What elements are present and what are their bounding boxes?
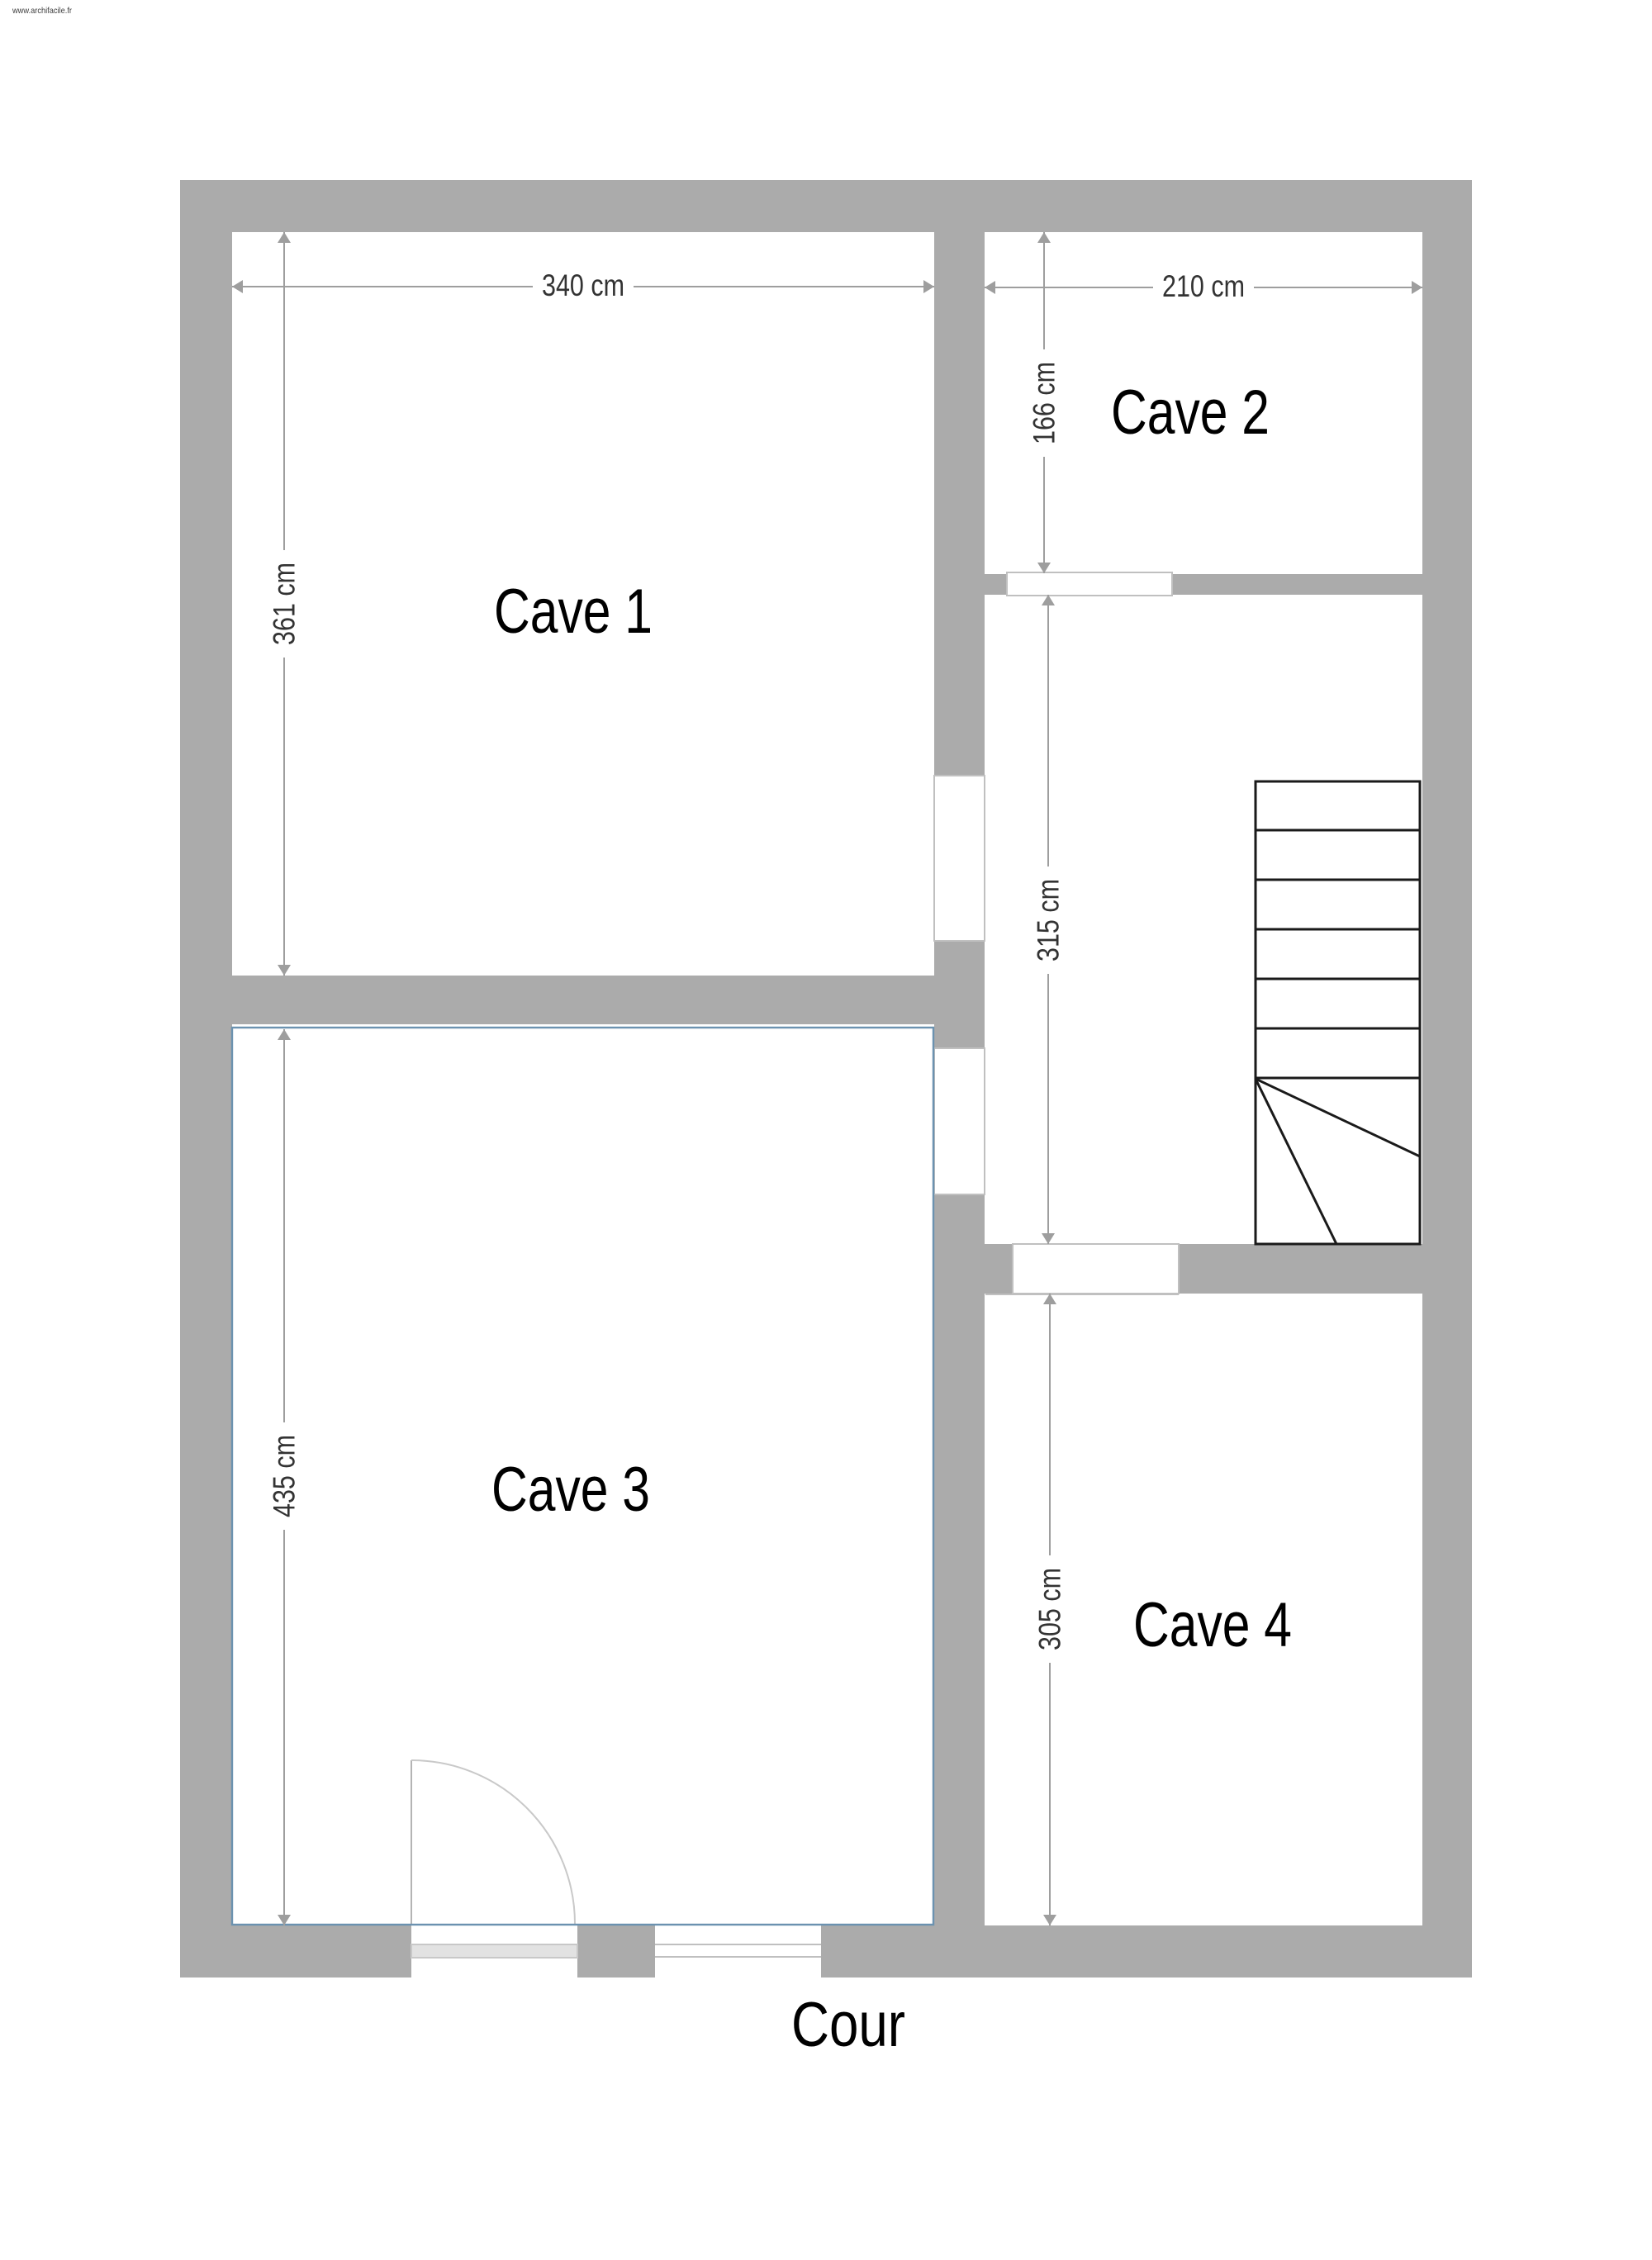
svg-text:Cave 2: Cave 2 [1111,377,1270,448]
svg-text:Cave 4: Cave 4 [1133,1590,1292,1660]
svg-text:340 cm: 340 cm [542,268,624,302]
svg-text:www.archifacile.fr: www.archifacile.fr [12,6,72,16]
svg-text:Cave 3: Cave 3 [491,1455,650,1525]
svg-text:Cour: Cour [791,1990,905,2060]
svg-text:166 cm: 166 cm [1028,362,1061,444]
svg-text:305 cm: 305 cm [1033,1568,1067,1650]
svg-text:315 cm: 315 cm [1032,879,1066,961]
svg-text:210 cm: 210 cm [1162,269,1245,303]
svg-text:361 cm: 361 cm [268,563,301,645]
svg-text:Cave 1: Cave 1 [494,577,653,647]
svg-text:435 cm: 435 cm [268,1435,301,1517]
